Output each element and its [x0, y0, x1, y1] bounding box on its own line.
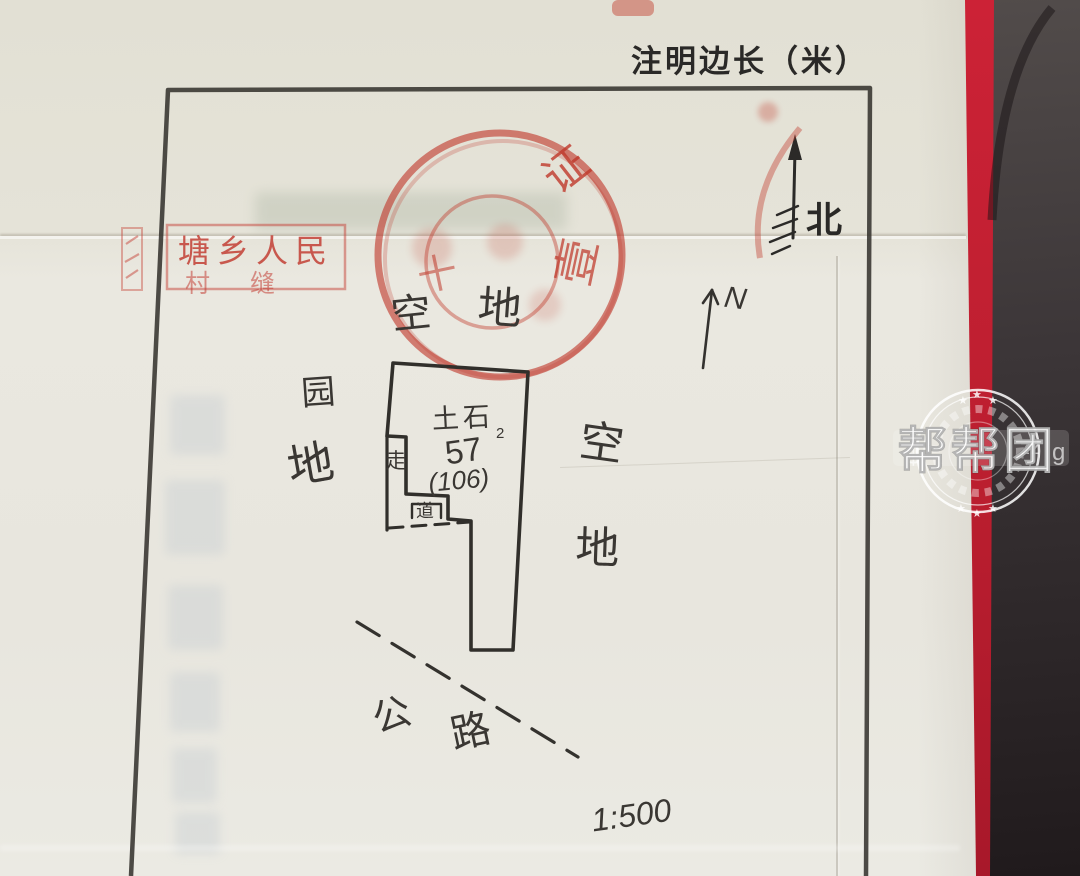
label-vacant-top-1: 空: [389, 290, 433, 338]
watermark-star-icon: ★: [988, 503, 998, 515]
label-vacant-top-2: 地: [476, 283, 523, 335]
label-garden-2: 地: [283, 435, 337, 494]
diagram-overlay: 注明边长（米） 北 N 塘乡人民 村缝: [0, 0, 1080, 876]
label-vacant-right-1: 空: [576, 416, 626, 471]
building-dashed-edge: [389, 522, 470, 528]
background-arc: [992, 8, 1052, 220]
passage-label-walk: 走: [386, 450, 407, 473]
rect-stamp: 塘乡人民 村缝: [122, 225, 345, 298]
building-material: 土石: [431, 401, 494, 434]
building-number-paren: (106): [427, 462, 490, 497]
passage-label-path: 道: [416, 501, 434, 521]
stamp-mark-top: [612, 0, 654, 16]
rect-stamp-line1: 塘乡人民: [178, 233, 334, 269]
hand-north-arrow-icon: [703, 290, 718, 368]
rect-stamp-line2: 村缝: [185, 270, 315, 298]
watermark-star-icon: ★: [956, 503, 966, 515]
watermark-brand: 帮帮团: [898, 423, 1057, 479]
label-vacant-right-2: 地: [575, 523, 621, 574]
road-label-1: 公: [367, 690, 416, 742]
rect-stamp-side-marks: [125, 236, 139, 278]
page-title: 注明边长（米）: [631, 44, 869, 79]
watermark-star-icon: ★: [972, 508, 982, 520]
map-scale: 1:500: [589, 792, 674, 839]
watermark-star-icon: ★: [988, 395, 998, 407]
watermark-star-icon: ★: [972, 389, 982, 401]
building-material-subscript: 2: [496, 425, 504, 442]
photo-background: 注明边长（米） 北 N 塘乡人民 村缝: [0, 0, 1080, 876]
label-garden-1: 园: [300, 373, 337, 413]
north-arrow-icon: [770, 134, 802, 254]
watermark-star-icon: ★: [958, 395, 968, 407]
road-label-2: 路: [447, 706, 495, 757]
north-label: 北: [806, 199, 842, 240]
round-stamp-char2: 壹: [547, 234, 607, 290]
hand-north-label: N: [722, 281, 748, 317]
watermark-badge: ★ ★ ★ ★ ★ ★ $ zz g 帮帮团: [893, 389, 1069, 520]
